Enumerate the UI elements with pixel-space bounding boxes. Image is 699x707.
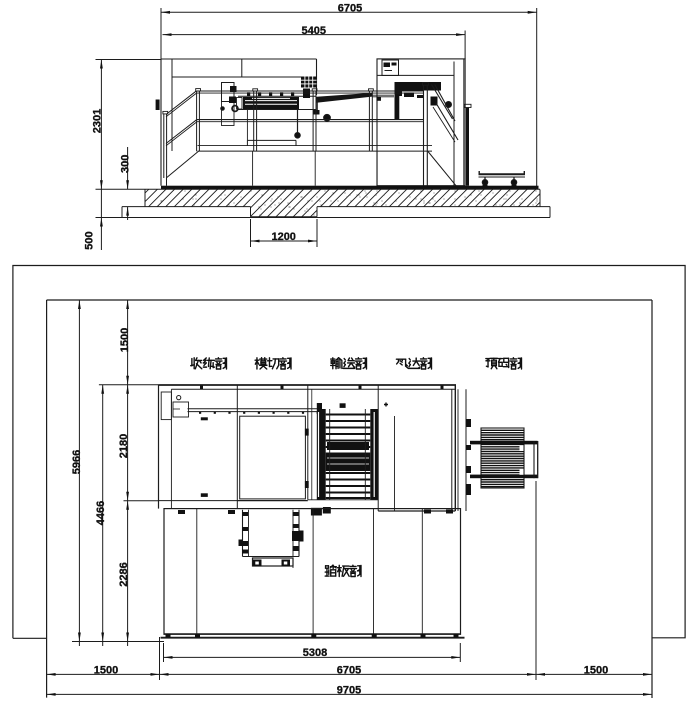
svg-text:2180: 2180 xyxy=(118,434,130,458)
svg-text:5405: 5405 xyxy=(302,25,326,37)
svg-text:1500: 1500 xyxy=(119,328,131,352)
svg-text:6705: 6705 xyxy=(337,664,361,676)
svg-text:1500: 1500 xyxy=(584,664,608,676)
svg-text:1500: 1500 xyxy=(94,664,118,676)
svg-text:1200: 1200 xyxy=(271,231,295,243)
svg-text:2286: 2286 xyxy=(118,562,130,586)
svg-text:6705: 6705 xyxy=(338,3,362,15)
svg-text:5966: 5966 xyxy=(71,450,83,474)
svg-text:5308: 5308 xyxy=(303,647,327,659)
svg-text:9705: 9705 xyxy=(337,684,361,696)
svg-text:4466: 4466 xyxy=(95,501,107,525)
svg-text:300: 300 xyxy=(119,155,131,173)
svg-text:2301: 2301 xyxy=(91,109,103,133)
svg-text:500: 500 xyxy=(84,231,96,249)
